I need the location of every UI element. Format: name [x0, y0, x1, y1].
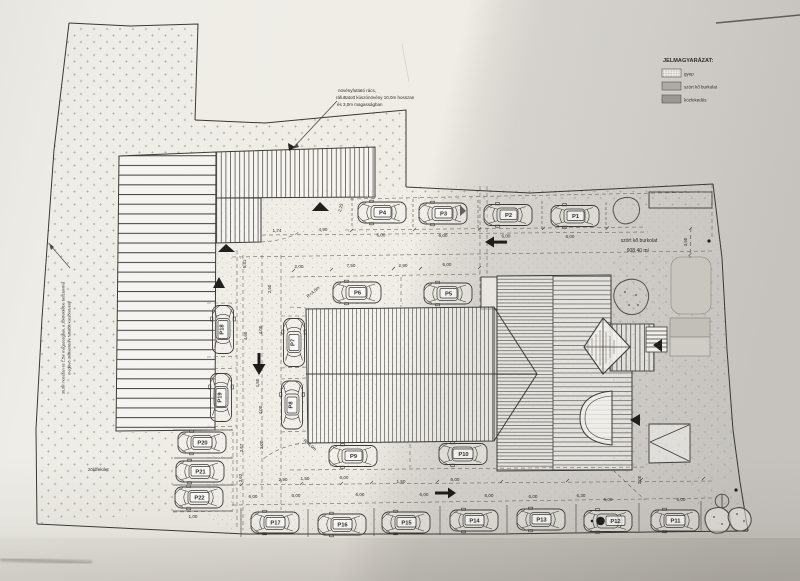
svg-text:P10: P10	[458, 452, 468, 458]
svg-text:6,00: 6,00	[529, 494, 538, 499]
svg-text:6,00: 6,00	[340, 475, 349, 480]
svg-text:1,50: 1,50	[301, 476, 310, 481]
svg-text:2,90: 2,90	[399, 263, 408, 268]
svg-text:meglévő drótkerítésre futtatot: meglévő drótkerítésre futtatott kúszónöv…	[68, 301, 72, 375]
svg-text:30,0m hosszan és 1,5m magasság: 30,0m hosszan és 1,5m magasságban, a zöl…	[62, 281, 66, 394]
svg-text:6,30: 6,30	[577, 493, 586, 498]
svg-text:1,00: 1,00	[189, 514, 198, 519]
svg-text:3,62: 3,62	[238, 473, 243, 482]
svg-text:P16: P16	[337, 523, 348, 529]
svg-text:4,00: 4,00	[258, 405, 263, 414]
svg-text:P2: P2	[505, 213, 512, 219]
svg-text:3,67: 3,67	[239, 443, 244, 452]
svg-text:és 3,0m magasságban: és 3,0m magasságban	[337, 102, 383, 107]
svg-text:1,74: 1,74	[273, 228, 282, 233]
svg-text:4,60: 4,60	[243, 331, 248, 340]
svg-text:P1: P1	[572, 214, 580, 220]
svg-text:6,00: 6,00	[439, 233, 448, 238]
svg-text:P19: P19	[218, 392, 224, 403]
svg-text:P5: P5	[445, 292, 453, 298]
svg-text:4,00: 4,00	[258, 325, 263, 334]
svg-text:2,00: 2,00	[295, 264, 304, 269]
svg-text:P20: P20	[197, 441, 207, 447]
svg-text:6,00: 6,00	[485, 493, 494, 498]
svg-text:6,00: 6,00	[604, 497, 613, 502]
svg-text:1,50: 1,50	[255, 378, 260, 387]
svg-text:P3: P3	[440, 212, 448, 218]
svg-text:3,00: 3,00	[259, 440, 264, 449]
svg-text:2,90: 2,90	[279, 477, 288, 482]
svg-text:5,41: 5,41	[242, 259, 247, 268]
svg-text:P22: P22	[194, 496, 204, 502]
svg-text:P9: P9	[350, 454, 358, 460]
svg-text:P17: P17	[270, 521, 280, 527]
svg-text:JELMAGYARÁZAT:: JELMAGYARÁZAT:	[663, 57, 713, 64]
svg-text:908,40 m²: 908,40 m²	[627, 248, 650, 254]
svg-text:1,50: 1,50	[397, 479, 406, 484]
svg-text:6,00: 6,00	[377, 233, 386, 238]
svg-text:6,00: 6,00	[502, 234, 511, 239]
svg-text:közlekedés: közlekedés	[684, 98, 707, 103]
svg-text:6,00: 6,00	[356, 492, 365, 497]
svg-text:zöldfelület: zöldfelület	[88, 467, 109, 472]
svg-text:ráfuttatott kúszónövény 10,0m: ráfuttatott kúszónövény 10,0m hosszan	[336, 95, 415, 100]
svg-text:3,00: 3,00	[637, 475, 642, 484]
svg-text:3,50: 3,50	[683, 237, 688, 246]
svg-text:4,90: 4,90	[319, 227, 328, 232]
svg-text:P15: P15	[401, 521, 412, 527]
svg-text:szórt kő burkolat: szórt kő burkolat	[684, 85, 718, 90]
svg-text:P8: P8	[289, 401, 295, 409]
svg-text:P7: P7	[291, 339, 297, 346]
svg-text:gyep: gyep	[684, 72, 694, 77]
svg-text:szórt kő burkolat: szórt kő burkolat	[621, 238, 658, 244]
svg-text:7,50: 7,50	[347, 263, 356, 268]
svg-text:6,00: 6,00	[420, 492, 429, 497]
svg-text:6,00: 6,00	[292, 493, 301, 498]
svg-text:P6: P6	[354, 291, 362, 297]
svg-text:P13: P13	[536, 518, 547, 524]
svg-text:P4: P4	[379, 211, 387, 217]
svg-text:növényfuttató rács,: növényfuttató rács,	[338, 88, 376, 93]
svg-text:P21: P21	[195, 470, 206, 476]
svg-text:P12: P12	[610, 519, 620, 525]
svg-text:P18: P18	[220, 324, 226, 335]
svg-text:2,50: 2,50	[267, 284, 272, 293]
svg-text:6,00: 6,00	[451, 477, 460, 482]
svg-text:6,00: 6,00	[443, 262, 452, 267]
svg-text:6,00: 6,00	[566, 234, 575, 239]
svg-text:P14: P14	[469, 519, 480, 525]
svg-text:P11: P11	[671, 519, 682, 525]
svg-text:6,00: 6,00	[677, 497, 686, 502]
svg-text:6,00: 6,00	[249, 494, 258, 499]
